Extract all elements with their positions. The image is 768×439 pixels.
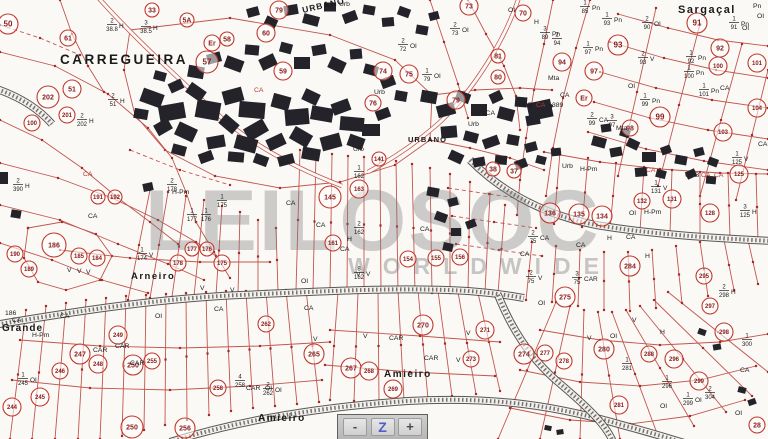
- boundary-node-dot: [125, 295, 127, 297]
- culture-code-label: V: [67, 267, 72, 274]
- building: [674, 155, 687, 166]
- boundary-node-dot: [329, 34, 331, 36]
- boundary-node-dot: [543, 169, 545, 171]
- culture-code-label: CA: [646, 167, 656, 174]
- parcel-circle-number: 298: [719, 330, 730, 336]
- boundary-node-dot: [377, 345, 379, 347]
- parcel-circle-number: 100: [713, 64, 724, 70]
- boundary-node-dot: [583, 309, 585, 311]
- building: [591, 135, 607, 148]
- parcel-circle-number: 178: [173, 261, 184, 267]
- parcel-circle-number: 70: [519, 10, 527, 17]
- boundary-node-dot: [101, 279, 103, 281]
- building: [153, 70, 167, 82]
- boundary-node-dot: [422, 343, 424, 345]
- parcel-circle-number: 274: [518, 351, 530, 358]
- boundary-node-dot: [400, 344, 402, 346]
- parcel-circle-number: 161: [328, 241, 339, 247]
- culture-code-label: Urb: [374, 89, 385, 96]
- boundary-node-dot: [171, 157, 173, 159]
- boundary-node-dot: [107, 93, 109, 95]
- parcel-circle-number: 244: [7, 405, 18, 411]
- building: [246, 6, 260, 18]
- svg-text:Pn: Pn: [711, 88, 719, 95]
- parcel-circle-number: 186: [48, 242, 60, 249]
- boundary-node-dot: [65, 302, 67, 304]
- boundary-node-dot: [290, 346, 292, 348]
- svg-text:CAR: CAR: [584, 276, 598, 283]
- parcel-circle-number: 141: [374, 157, 385, 163]
- culture-code-label: V: [456, 357, 461, 364]
- building: [524, 141, 538, 153]
- boundary-node-dot: [663, 57, 665, 59]
- parcel-circle-number: Er: [580, 95, 588, 102]
- boundary-node-dot: [597, 311, 599, 313]
- boundary-node-dot: [627, 251, 629, 253]
- parcel-circle-number: 59: [279, 68, 287, 75]
- boundary-node-dot: [229, 17, 231, 19]
- culture-code-label: V: [77, 268, 82, 275]
- svg-text:101: 101: [699, 92, 710, 98]
- svg-text:174: 174: [137, 256, 148, 262]
- building: [472, 157, 485, 168]
- boundary-node-dot: [38, 371, 40, 373]
- building: [362, 124, 380, 136]
- parcel-circle-number: 288: [644, 352, 655, 358]
- boundary-node-dot: [259, 345, 261, 347]
- boundary-node-dot: [23, 257, 25, 259]
- boundary-node-dot: [494, 375, 496, 377]
- svg-text:85: 85: [582, 9, 589, 15]
- building: [133, 108, 149, 120]
- boundary-node-dot: [61, 221, 63, 223]
- building: [342, 10, 359, 24]
- svg-text:131: 131: [651, 189, 662, 195]
- svg-text:2: 2: [16, 179, 20, 185]
- svg-text:1: 1: [357, 166, 361, 172]
- svg-text:298: 298: [719, 293, 730, 299]
- building: [420, 90, 438, 105]
- boundary-node-dot: [19, 339, 21, 341]
- boundary-node-dot: [395, 160, 397, 162]
- building: [284, 108, 309, 126]
- boundary-node-dot: [707, 295, 709, 297]
- building: [737, 386, 746, 394]
- parcel-circle-number: 269: [388, 387, 399, 393]
- svg-text:99: 99: [589, 121, 596, 127]
- svg-text:281: 281: [622, 366, 633, 372]
- svg-text:75: 75: [530, 239, 537, 245]
- boundary-node-dot: [707, 129, 709, 131]
- svg-text:1: 1: [687, 66, 691, 72]
- boundary-node-dot: [105, 297, 107, 299]
- building: [228, 151, 245, 162]
- parcel-circle-number: 175: [217, 261, 228, 267]
- boundary-node-dot: [659, 367, 661, 369]
- building: [195, 99, 222, 121]
- svg-text:79: 79: [424, 77, 431, 83]
- boundary-node-dot: [503, 65, 505, 67]
- parcel-circle-number: 245: [35, 395, 46, 401]
- parcel-circle-number: 60: [262, 30, 270, 37]
- building: [223, 55, 244, 72]
- boundary-node-dot: [81, 368, 83, 370]
- svg-text:Pn: Pn: [614, 17, 622, 24]
- map-viewport[interactable]: LEILOSOC WORLDWIDE 506157512025879605973…: [0, 0, 768, 439]
- boundary-node-dot: [474, 89, 476, 91]
- boundary-node-dot: [59, 219, 61, 221]
- boundary-node-dot: [653, 278, 655, 280]
- parcel-circle-number: 51: [68, 86, 76, 93]
- boundary-node-dot: [752, 261, 754, 263]
- culture-code-label: Urb: [562, 163, 573, 170]
- boundary-node-dot: [702, 347, 704, 349]
- boundary-node-dot: [121, 435, 123, 437]
- boundary-node-dot: [552, 0, 554, 1]
- svg-text:V: V: [366, 271, 371, 278]
- boundary-node-dot: [755, 173, 757, 175]
- building: [747, 398, 757, 406]
- culture-code-label: CA: [560, 92, 570, 99]
- parcel-circle-number: 94: [558, 59, 566, 66]
- parcel-circle-number: 93: [614, 41, 623, 50]
- place-name-label: Arneiro: [131, 271, 175, 282]
- parcel-circle-number: 28: [753, 422, 761, 429]
- boundary-node-dot: [329, 341, 331, 343]
- boundary-node-dot: [0, 51, 1, 53]
- boundary-node-dot: [617, 175, 619, 177]
- parcel-circle-number: 177: [187, 247, 198, 253]
- parcel-circle-number: 132: [637, 199, 648, 205]
- boundary-node-dot: [54, 65, 56, 67]
- building: [428, 11, 440, 21]
- building: [463, 130, 479, 143]
- map-canvas[interactable]: LEILOSOC WORLDWIDE 506157512025879605973…: [0, 0, 768, 439]
- boundary-node-dot: [129, 149, 131, 151]
- boundary-node-dot: [206, 352, 208, 354]
- svg-text:H: H: [153, 25, 158, 32]
- boundary-node-dot: [363, 156, 365, 158]
- svg-text:1: 1: [140, 248, 144, 254]
- parcel-circle-number: 128: [705, 211, 716, 217]
- svg-text:245: 245: [18, 381, 29, 387]
- building: [294, 57, 310, 69]
- culture-code-label: Urb: [353, 146, 364, 153]
- parcel-circle-number: 73: [465, 3, 473, 10]
- building: [697, 328, 707, 336]
- boundary-node-dot: [655, 307, 657, 309]
- boundary-node-dot: [509, 157, 511, 159]
- svg-text:38.5: 38.5: [140, 29, 152, 35]
- parcel-circle-number: 81: [494, 53, 502, 60]
- svg-text:V: V: [149, 252, 154, 259]
- boundary-node-dot: [608, 374, 610, 376]
- boundary-node-dot: [615, 162, 617, 164]
- boundary-node-dot: [252, 407, 254, 409]
- building: [310, 105, 334, 123]
- culture-code-label: CAR: [93, 347, 107, 354]
- svg-text:202: 202: [77, 122, 88, 128]
- building: [497, 106, 516, 122]
- culture-code-label: H-Pm: [172, 189, 190, 196]
- svg-text:93: 93: [640, 60, 647, 66]
- parcel-circle-number: 75: [405, 71, 413, 78]
- parcel-circle-number: 281: [614, 403, 625, 409]
- boundary-node-dot: [639, 305, 641, 307]
- svg-text:2: 2: [708, 387, 712, 393]
- svg-text:38.8: 38.8: [106, 27, 118, 33]
- parcel-circle-number: 156: [455, 255, 466, 261]
- boundary-node-dot: [138, 244, 140, 246]
- boundary-node-dot: [678, 104, 680, 106]
- fraction-label: 1281: [622, 358, 633, 373]
- fraction-label: 185Pn: [580, 1, 600, 16]
- svg-text:93: 93: [604, 21, 611, 27]
- parcel-circle-number: 103: [718, 130, 729, 136]
- culture-code-label: H-Pm: [580, 166, 598, 173]
- culture-code-label: CA: [536, 102, 546, 109]
- boundary-node-dot: [65, 289, 67, 291]
- parcel-circle-number: 97: [590, 68, 598, 75]
- culture-code-label: V: [200, 285, 205, 292]
- boundary-node-dot: [727, 172, 729, 174]
- parcel-circle-number: 192: [110, 195, 121, 201]
- parcel-circle-number: 74: [379, 68, 387, 75]
- building: [270, 93, 291, 111]
- culture-code-label: CA: [340, 246, 350, 253]
- boundary-node-dot: [711, 99, 713, 101]
- boundary-node-dot: [625, 309, 627, 311]
- place-name-label: CARREGUEIRA: [60, 52, 188, 67]
- zoom-in-button[interactable]: +: [398, 418, 422, 436]
- svg-text:H: H: [89, 118, 94, 125]
- parcel-circle-number: 258: [213, 386, 224, 392]
- parcel-circle-number: 57: [203, 58, 212, 67]
- fraction-label: 1245OI: [18, 373, 37, 388]
- boundary-node-dot: [25, 309, 27, 311]
- watermark-line2: WORLDWIDE: [348, 253, 612, 279]
- building: [556, 429, 564, 435]
- boundary-node-dot: [628, 280, 630, 282]
- boundary-node-dot: [525, 299, 527, 301]
- culture-code-label: CA: [758, 141, 768, 148]
- parcel-circle-number: 184: [92, 256, 103, 262]
- svg-text:4: 4: [238, 375, 242, 381]
- boundary-node-dot: [17, 373, 19, 375]
- parcel-circle-number: 273: [466, 357, 477, 363]
- boundary-node-dot: [579, 381, 581, 383]
- parcel-circle-number: 284: [624, 263, 636, 270]
- culture-code-label: CA: [720, 85, 730, 92]
- boundary-node-dot: [611, 311, 613, 313]
- building: [279, 42, 293, 55]
- parcel-circle-number: Er: [208, 40, 216, 47]
- boundary-node-dot: [59, 0, 61, 1]
- svg-text:89: 89: [542, 35, 549, 41]
- parcel-circle-number: 104: [752, 106, 763, 112]
- building: [238, 101, 265, 119]
- culture-code-label: CAR: [246, 385, 260, 392]
- parcel-circle-number: 134: [596, 213, 608, 220]
- boundary-node-dot: [229, 277, 231, 279]
- culture-code-label: V: [587, 335, 592, 342]
- parcel-circle-number: 131: [667, 197, 678, 203]
- boundary-node-dot: [39, 37, 41, 39]
- boundary-node-dot: [208, 414, 210, 416]
- building: [320, 133, 343, 152]
- parcel-circle-number: 50: [4, 20, 13, 29]
- svg-text:75: 75: [574, 280, 581, 286]
- building: [655, 169, 667, 179]
- boundary-node-dot: [0, 204, 1, 206]
- zoom-extent-button[interactable]: Z: [371, 418, 395, 436]
- parcel-circle-number: 79: [452, 97, 460, 104]
- boundary-node-dot: [95, 233, 97, 235]
- culture-code-label: OI: [508, 7, 515, 14]
- svg-text:OI: OI: [654, 21, 661, 28]
- boundary-node-dot: [741, 43, 743, 45]
- boundary-node-dot: [636, 91, 638, 93]
- place-name-label: Amieiro: [384, 369, 432, 380]
- boundary-node-dot: [755, 365, 757, 367]
- svg-text:100: 100: [684, 74, 695, 80]
- boundary-node-dot: [89, 387, 91, 389]
- parcel-circle-number: 76: [369, 100, 377, 107]
- boundary-node-dot: [45, 305, 47, 307]
- culture-code-label: V: [86, 269, 91, 276]
- svg-text:162: 162: [354, 230, 365, 236]
- boundary-node-dot: [603, 309, 605, 311]
- svg-text:OI: OI: [410, 43, 417, 50]
- boundary-node-dot: [603, 280, 605, 282]
- culture-code-label: CA: [304, 305, 314, 312]
- building: [0, 172, 8, 184]
- culture-code-label: CAR: [389, 335, 403, 342]
- building: [158, 102, 186, 122]
- boundary-node-dot: [744, 399, 746, 401]
- fraction-label: 3125H: [740, 205, 757, 220]
- building: [544, 425, 552, 431]
- boundary-node-dot: [499, 390, 501, 392]
- boundary-node-dot: [751, 395, 753, 397]
- fraction-label: 272OI: [398, 39, 417, 54]
- boundary-node-dot: [0, 162, 1, 164]
- svg-text:Pn: Pn: [652, 98, 660, 105]
- boundary-node-dot: [331, 153, 333, 155]
- boundary-node-dot: [469, 147, 471, 149]
- svg-text:177: 177: [187, 217, 198, 223]
- culture-code-label: OI: [538, 300, 545, 307]
- boundary-node-dot: [333, 345, 335, 347]
- boundary-node-dot: [129, 257, 131, 259]
- building: [642, 152, 656, 162]
- parcel-circle-number: 265: [308, 351, 320, 358]
- boundary-node-dot: [678, 273, 680, 275]
- building: [311, 44, 327, 56]
- parcel-circle-number: 275: [559, 294, 571, 301]
- parcel-circle-number: 80: [494, 74, 502, 81]
- building: [327, 56, 347, 74]
- building: [551, 148, 562, 157]
- svg-text:1: 1: [425, 69, 429, 75]
- parcel-circle-number: 155: [431, 256, 442, 262]
- culture-code-label: V: [363, 333, 368, 340]
- svg-text:2: 2: [110, 19, 114, 25]
- boundary-node-dot: [639, 385, 641, 387]
- boundary-node-dot: [467, 117, 469, 119]
- place-name-label: Amieiro: [258, 413, 306, 424]
- boundary-node-dot: [599, 161, 601, 163]
- building: [153, 118, 173, 136]
- building: [382, 17, 395, 27]
- boundary-node-dot: [145, 294, 147, 296]
- boundary-node-dot: [394, 59, 396, 61]
- boundary-node-dot: [466, 342, 468, 344]
- svg-text:2: 2: [80, 114, 84, 120]
- boundary-node-dot: [11, 379, 13, 381]
- boundary-node-dot: [675, 245, 677, 247]
- culture-code-label: H: [534, 19, 539, 26]
- culture-code-label: OI: [301, 278, 308, 285]
- building: [626, 137, 641, 150]
- boundary-node-dot: [569, 419, 571, 421]
- boundary-node-dot: [179, 347, 181, 349]
- boundary-node-dot: [164, 358, 166, 360]
- parcel-circle-number: 201: [62, 113, 73, 119]
- boundary-node-dot: [318, 401, 320, 403]
- boundary-node-dot: [475, 393, 477, 395]
- boundary-node-dot: [681, 302, 683, 304]
- boundary-node-dot: [179, 169, 181, 171]
- building: [535, 155, 547, 165]
- boundary-node-dot: [519, 87, 521, 89]
- svg-text:2: 2: [453, 23, 457, 29]
- parcel-circle-number: 278: [559, 359, 570, 365]
- building: [139, 88, 164, 109]
- boundary-node-dot: [756, 206, 758, 208]
- boundary-node-dot: [728, 204, 730, 206]
- parcel-circle-number: 268: [364, 369, 375, 375]
- svg-text:Pn: Pn: [696, 70, 704, 77]
- parcel-circle-number: 136: [544, 210, 556, 217]
- culture-code-label: CAR: [424, 355, 438, 362]
- boundary-node-dot: [117, 243, 119, 245]
- svg-text:299: 299: [683, 401, 694, 407]
- parcel-circle-number: 5A: [183, 17, 192, 24]
- culture-code-label: CA: [88, 213, 98, 220]
- svg-text:75: 75: [528, 279, 535, 285]
- culture-code-label: OI: [610, 333, 617, 340]
- parcel-circle-number: 185: [74, 254, 85, 260]
- parcel-circle-number: 297: [705, 304, 716, 310]
- svg-text:CA: CA: [540, 235, 550, 242]
- boundary-node-dot: [551, 301, 553, 303]
- zoom-out-button[interactable]: -: [343, 418, 367, 436]
- culture-code-label: 186: [5, 310, 17, 317]
- culture-code-label: H: [645, 253, 650, 260]
- svg-text:Pn: Pn: [595, 46, 603, 53]
- building: [394, 90, 408, 102]
- svg-text:H: H: [120, 98, 125, 105]
- svg-text:H: H: [731, 289, 736, 296]
- boundary-node-dot: [653, 299, 655, 301]
- parcel-line: [20, 340, 330, 348]
- svg-text:V: V: [744, 156, 749, 163]
- boundary-node-dot: [551, 89, 553, 91]
- fraction-label: 293V: [638, 52, 655, 67]
- boundary-node-dot: [499, 341, 501, 343]
- svg-text:2: 2: [722, 285, 726, 291]
